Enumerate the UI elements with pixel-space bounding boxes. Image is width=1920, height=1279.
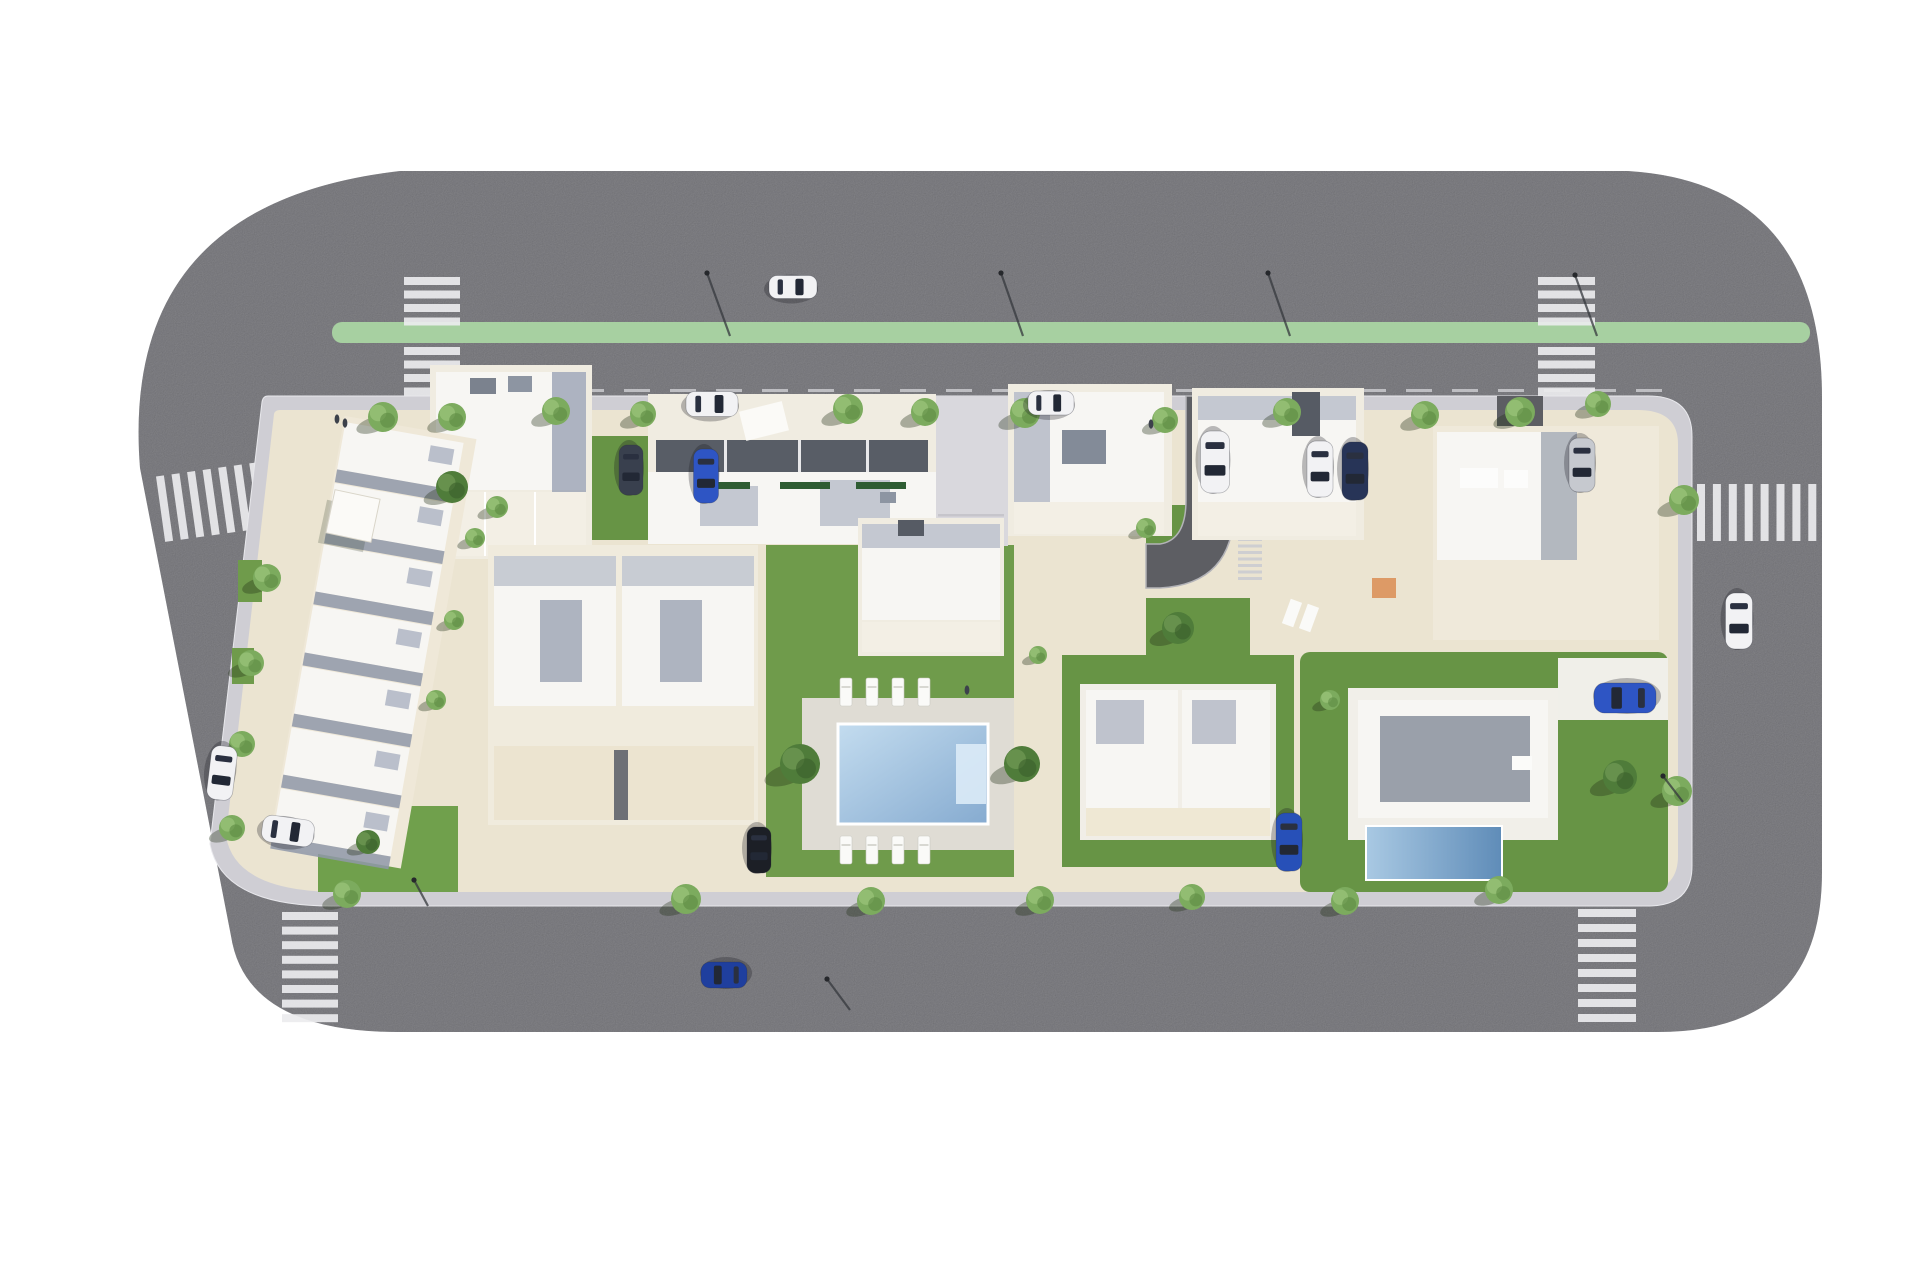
garden-tree-foliage (1175, 624, 1191, 640)
sun-lounger-bed (866, 678, 878, 706)
hairpin-stairs-bar (1238, 558, 1262, 561)
car-white-right-road (1721, 588, 1754, 650)
street-tree-foliage (1037, 896, 1051, 910)
car-white-parked (1023, 390, 1075, 420)
pedestrian (965, 685, 970, 694)
building-3-core (1062, 430, 1106, 464)
suv-white-driveway (1196, 426, 1231, 494)
building-7-roof-shade (540, 600, 582, 682)
road-center-dashes-bar (854, 389, 880, 392)
crosswalk-bottom-right-bar (1578, 969, 1636, 977)
crosswalk-top-right-lower-bar (1538, 347, 1595, 355)
garden-tree-foliage (449, 483, 465, 499)
car-white-top-road (764, 275, 818, 304)
suv-navy-parked-windshield (1346, 474, 1365, 484)
car-white-right-road-windshield (1729, 624, 1748, 634)
crosswalk-bottom-right-bar (1578, 954, 1636, 962)
sun-lounger-bed (866, 836, 878, 864)
building-7-roof-shade (622, 556, 754, 586)
sun-lounger-fold (868, 844, 877, 846)
street-tree-foliage (1595, 400, 1608, 413)
sun-lounger-bed (840, 678, 852, 706)
car-blue-villa-windshield (1611, 687, 1622, 709)
crosswalk-bottom-right-bar (1578, 999, 1636, 1007)
crosswalk-right-side-bar (1808, 484, 1816, 541)
building-9-roof-shade (1096, 700, 1144, 744)
building-4-terrace (1198, 502, 1356, 536)
crosswalk-top-left-lower-bar (404, 347, 460, 355)
car-silver-parked (1564, 433, 1596, 493)
car-silver-parked-windshield (1573, 468, 1592, 477)
sun-lounger (840, 836, 852, 864)
sun-lounger (866, 836, 878, 864)
car-silver-parked-rear-glass (1573, 448, 1590, 454)
crosswalk-top-right-upper-bar (1538, 318, 1595, 326)
crosswalk-top-left-upper-bar (404, 304, 460, 312)
suv-white-parked (1302, 436, 1334, 498)
crosswalk-left-lower-bar (282, 927, 338, 935)
street-tree-foliage (239, 740, 252, 753)
street-lamp-head (998, 270, 1003, 275)
street-tree-foliage (868, 897, 882, 911)
car-blue-bottom-road-body (701, 962, 747, 988)
road-center-dashes-bar (808, 389, 834, 392)
car-blue-villa (1593, 678, 1661, 714)
sun-lounger-bed (892, 836, 904, 864)
street-tree-foliage (553, 407, 567, 421)
building-5-sofa (1460, 468, 1498, 488)
building-1-vent (470, 378, 496, 394)
street-lamp-head (1660, 773, 1665, 778)
street-tree-foliage (640, 410, 653, 423)
crosswalk-right-side-bar (1697, 484, 1705, 541)
street-tree-foliage (264, 574, 278, 588)
crosswalk-left-lower-bar (282, 1014, 338, 1022)
site-plan-render (0, 0, 1920, 1279)
street-tree-foliage (1496, 886, 1510, 900)
street-tree-foliage (845, 405, 860, 420)
crosswalk-bottom-right-bar (1578, 1014, 1636, 1022)
crosswalk-left-lower-bar (282, 1000, 338, 1008)
building-5-sofa (1504, 470, 1528, 488)
crosswalk-bottom-right-bar (1578, 909, 1636, 917)
sun-lounger (840, 678, 852, 706)
building-7-roof-shade (494, 556, 616, 586)
road-center-dashes-bar (624, 389, 650, 392)
crosswalk-top-right-lower-bar (1538, 361, 1595, 369)
crosswalk-left-lower-bar (282, 941, 338, 949)
hairpin-stairs-bar (1238, 551, 1262, 554)
sun-lounger-bed (840, 836, 852, 864)
street-tree-foliage (344, 890, 358, 904)
crosswalk-top-left-upper-bar (404, 318, 460, 326)
suv-navy-parked-rear-glass (1346, 452, 1363, 458)
building-7-garage-strip (614, 750, 628, 820)
building-7-roof-shade (660, 600, 702, 682)
street-tree-foliage (922, 408, 936, 422)
garden-shrub-foliage (1328, 697, 1338, 707)
garden-shrub-foliage (452, 617, 462, 627)
building-2-patio-divider (724, 440, 727, 472)
car-blue-bottom-road-windshield (714, 966, 722, 985)
garden-shrub-foliage (434, 697, 444, 707)
suv-white-parked-windshield (1311, 472, 1330, 482)
canopy (326, 490, 380, 543)
street-tree-foliage (380, 413, 395, 428)
sun-lounger (892, 836, 904, 864)
building-8-roof-shade (862, 524, 1000, 548)
crosswalk-left-lower-bar (282, 956, 338, 964)
crosswalk-top-right-upper-bar (1538, 277, 1595, 285)
car-blue-parked-se-body (1276, 813, 1302, 871)
crosswalk-right-side-bar (1729, 484, 1737, 541)
car-white-parked-rear-glass (695, 396, 701, 413)
road-center-dashes-bar (946, 389, 972, 392)
suv-white-driveway-body (1201, 431, 1230, 493)
sun-lounger (892, 678, 904, 706)
street-tree-foliage (1342, 897, 1356, 911)
sun-lounger (918, 678, 930, 706)
car-white-top-road-windshield (795, 279, 803, 296)
crosswalk-left-lower-bar (282, 970, 338, 978)
building-2-hedge (856, 482, 906, 489)
car-silver-parked-body (1569, 438, 1595, 492)
street-tree-foliage (1189, 893, 1202, 906)
building-2-vent (880, 492, 896, 503)
court-dining-table (1372, 578, 1396, 598)
road-center-dashes-bar (900, 389, 926, 392)
suv-navy-parked (1337, 437, 1369, 501)
building-2-patio-divider (866, 440, 869, 472)
suv-black-parked-body (747, 827, 771, 873)
crosswalk-left-lower-bar (282, 912, 338, 920)
suv-black-parked (742, 822, 772, 874)
car-blue-parked-se-windshield (1280, 845, 1299, 855)
crosswalk-right-side-bar (1745, 484, 1753, 541)
garden-shrub-foliage (473, 535, 483, 545)
hairpin-stairs-bar (1238, 564, 1262, 567)
building-2-patio-divider (798, 440, 801, 472)
car-blue-parked-rear-glass (698, 459, 715, 465)
crosswalk-right-side-bar (1777, 484, 1785, 541)
street-tree-foliage (449, 413, 463, 427)
sun-lounger (866, 678, 878, 706)
street-tree-foliage (248, 659, 261, 672)
lawn-hairpin-south (1146, 598, 1250, 660)
street-lamp-head (824, 976, 829, 981)
car-white-parked-body (1028, 391, 1074, 415)
sun-lounger-fold (894, 686, 903, 688)
garden-tree-foliage (366, 839, 378, 851)
building-9-terrace (1086, 808, 1270, 836)
suv-black-parked-windshield (750, 852, 767, 860)
crosswalk-right-side-bar (1713, 484, 1721, 541)
building-5-roof (1437, 432, 1541, 560)
villa-patio-table (1512, 756, 1532, 770)
car-white-right-road-rear-glass (1730, 603, 1748, 609)
suv-black-parked-rear-glass (751, 835, 767, 840)
pedestrian (343, 418, 348, 427)
street-tree-foliage (1284, 408, 1298, 422)
garden-tree-foliage (796, 758, 816, 778)
crosswalk-top-left-upper-bar (404, 277, 460, 285)
crosswalk-right-side-bar (1792, 484, 1800, 541)
building-1-terrace-divider (484, 492, 486, 556)
crosswalk-right-side-bar (1761, 484, 1769, 541)
van-dark-parked-windshield (622, 473, 639, 482)
road-center-dashes-bar (1498, 389, 1524, 392)
suv-white-driveway-rear-glass (1205, 442, 1224, 449)
sun-lounger-fold (842, 686, 851, 688)
van-dark-parked-rear-glass (623, 454, 639, 460)
crosswalk-bottom-right-bar (1578, 984, 1636, 992)
car-blue-villa-body (1594, 683, 1656, 713)
car-white-parked-rear-glass (1036, 395, 1041, 411)
road-center-dashes-bar (1406, 389, 1432, 392)
street-tree-foliage (229, 824, 242, 837)
sun-lounger-fold (894, 844, 903, 846)
pedestrian (1149, 419, 1154, 428)
car-white-parked-windshield (1053, 394, 1061, 411)
crosswalk-top-right-lower-bar (1538, 374, 1595, 382)
crosswalk-left-lower-bar (282, 985, 338, 993)
street-tree-foliage (1162, 416, 1175, 429)
sun-lounger-fold (920, 844, 929, 846)
garden-shrub-foliage (1036, 652, 1045, 661)
car-blue-bottom-road-rear-glass (734, 966, 739, 983)
crosswalk-bottom-right-bar (1578, 924, 1636, 932)
road-center-dashes-bar (1636, 389, 1662, 392)
plaza-steps-bar (938, 514, 1004, 517)
sun-lounger (918, 836, 930, 864)
car-blue-bottom-road (700, 957, 752, 989)
van-dark-parked-body (619, 445, 643, 495)
building-2-hedge (780, 482, 830, 489)
street-tree-foliage (683, 895, 698, 910)
car-white-parked-body (686, 392, 738, 417)
crosswalk-bottom-right-bar (1578, 939, 1636, 947)
pedestrian (335, 414, 340, 423)
car-blue-parked (689, 444, 720, 504)
building-8-stairwell (898, 520, 924, 536)
garden-tree-foliage (1617, 772, 1634, 789)
road-center-dashes-bar (762, 389, 788, 392)
crosswalk-top-left-upper-bar (404, 291, 460, 299)
road-center-dashes-bar (1452, 389, 1478, 392)
building-1-vent (508, 376, 532, 392)
suv-white-driveway-windshield (1205, 465, 1226, 476)
sun-lounger-bed (918, 836, 930, 864)
street-lamp-head (1265, 270, 1270, 275)
garden-tree-foliage (495, 504, 506, 515)
car-blue-parked-se (1271, 808, 1303, 872)
car-white-parked-windshield (715, 395, 724, 413)
building-8-terrace (862, 622, 1000, 652)
building-9-roof-shade (1192, 700, 1236, 744)
car-blue-villa-rear-glass (1638, 688, 1645, 708)
aerial-render-canvas (0, 0, 1920, 1279)
suv-white-parked-body (1307, 441, 1333, 497)
pool-steps (956, 744, 986, 804)
sun-lounger-fold (920, 686, 929, 688)
garden-tree-foliage (1018, 759, 1036, 777)
car-blue-parked-se-rear-glass (1280, 823, 1297, 829)
car-white-top-road-body (769, 276, 817, 299)
sun-lounger-fold (868, 686, 877, 688)
crosswalk-top-right-upper-bar (1538, 291, 1595, 299)
car-white-top-road-rear-glass (778, 279, 783, 294)
garden-shrub-foliage (1144, 525, 1154, 535)
sun-lounger-bed (892, 678, 904, 706)
van-dark-parked (614, 440, 644, 496)
car-white-parked (681, 391, 739, 422)
car-white-right-road-body (1726, 593, 1753, 649)
sun-lounger-bed (918, 678, 930, 706)
crosswalk-top-right-lower-bar (1538, 388, 1595, 396)
sun-lounger-fold (842, 844, 851, 846)
hairpin-stairs-bar (1238, 545, 1262, 548)
street-tree-foliage (1517, 408, 1532, 423)
car-blue-parked-windshield (697, 479, 715, 488)
villa-roof-terrace (1380, 716, 1530, 802)
suv-white-parked-rear-glass (1311, 451, 1328, 457)
street-lamp-head (1572, 272, 1577, 277)
car-blue-parked-body (694, 449, 719, 503)
suv-navy-parked-body (1342, 442, 1368, 500)
hairpin-stairs-bar (1238, 571, 1262, 574)
street-tree-foliage (1681, 496, 1696, 511)
street-tree-foliage (1422, 411, 1436, 425)
street-lamp-head (411, 877, 416, 882)
street-lamp-head (704, 270, 709, 275)
villa-pool (1366, 826, 1502, 880)
hairpin-stairs-bar (1238, 577, 1262, 580)
